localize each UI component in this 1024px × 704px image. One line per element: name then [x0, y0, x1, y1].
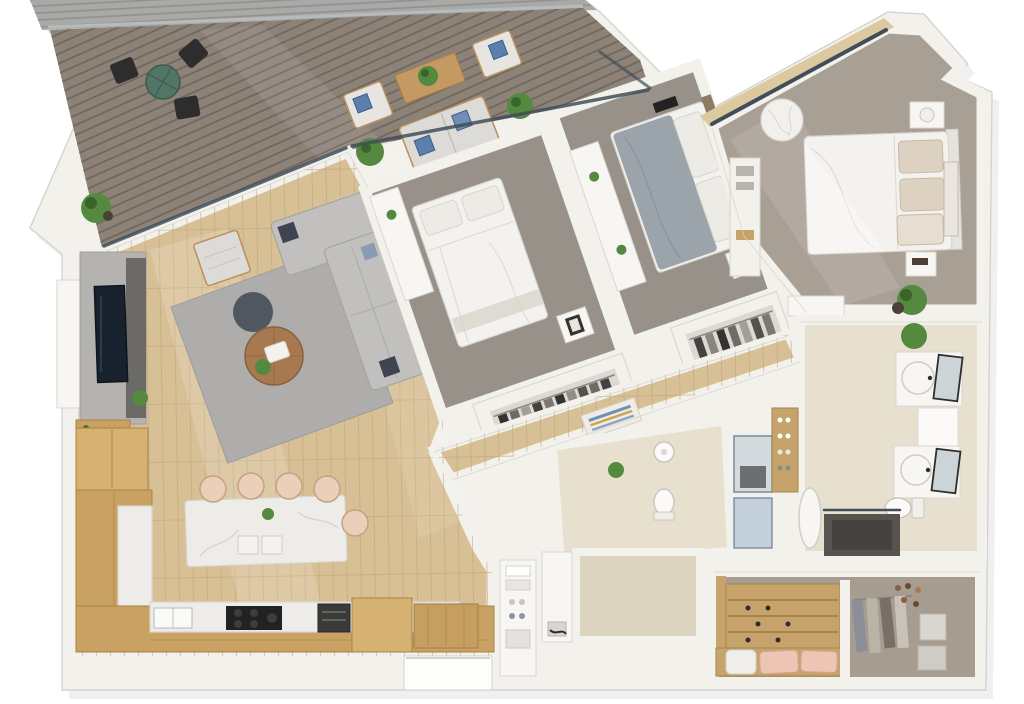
- plant-pot: [892, 302, 904, 314]
- master-nightstand-top: [910, 102, 944, 128]
- table-plant: [255, 359, 271, 375]
- tv-screen: [94, 286, 127, 383]
- storage-basket: [920, 614, 946, 640]
- pillow-beige: [900, 178, 945, 212]
- table-plant-core: [421, 69, 429, 77]
- books: [912, 258, 928, 265]
- bath-plant: [901, 323, 927, 349]
- media-plant: [132, 390, 148, 406]
- entry: [404, 656, 492, 690]
- bar-stool: [276, 473, 302, 499]
- kitchen-island: [185, 495, 347, 567]
- towel: [506, 580, 530, 590]
- guest-bathroom: [552, 420, 772, 564]
- media-cabinet-white: [57, 280, 81, 408]
- master-bed: [804, 129, 962, 254]
- plant-pot: [103, 211, 113, 221]
- bar-stool: [342, 510, 368, 536]
- leaning-mirror: [932, 449, 961, 494]
- faucet: [928, 376, 932, 380]
- laundry-tile-wall: [576, 552, 700, 640]
- countertop-left: [118, 506, 152, 610]
- washer-counter: [542, 552, 572, 642]
- bath-plant: [608, 462, 624, 478]
- master-bathroom: [772, 320, 982, 556]
- island-sink: [238, 536, 258, 554]
- leaning-artwork: [944, 162, 958, 236]
- master-closet-shelf: [730, 158, 760, 276]
- cooktop: [226, 606, 282, 630]
- ottoman-pouf: [233, 292, 273, 332]
- walk-in-closet: [714, 572, 980, 682]
- entry-recess: [404, 656, 492, 690]
- floor-plan-render: [0, 0, 1024, 704]
- pink-pillow: [801, 650, 838, 672]
- kitchen-step-cabinet: [352, 598, 412, 652]
- master-dresser: [788, 296, 844, 316]
- master-bedroom: [700, 18, 982, 316]
- storage-basket: [918, 646, 946, 670]
- vanity-2: [894, 446, 960, 498]
- linen-shelf: [500, 560, 536, 676]
- pink-pillow: [759, 650, 798, 674]
- bar-stool: [238, 473, 264, 499]
- closet-bench: [716, 648, 842, 676]
- built-in-oven: [318, 604, 350, 632]
- bar-stool: [314, 476, 340, 502]
- bean-bag-chair: [761, 99, 803, 141]
- walk-in-shower: [824, 510, 900, 556]
- shower-mat: [832, 520, 892, 550]
- island-sink: [262, 536, 282, 554]
- bar-stool: [200, 476, 226, 502]
- closet-divider-wall: [840, 580, 850, 678]
- round-coffee-table: [245, 327, 303, 385]
- glass-shower: [734, 436, 772, 492]
- deck-plant-core: [511, 97, 521, 107]
- basket: [506, 630, 530, 648]
- table-plant: [418, 66, 438, 86]
- vanity-column: [918, 408, 958, 446]
- outdoor-chair-icon: [173, 95, 200, 120]
- shower-floor: [740, 466, 766, 488]
- master-nightstand-bottom: [906, 252, 936, 276]
- white-throw: [726, 650, 756, 674]
- pillow-beige: [898, 140, 943, 174]
- glass-cabinet: [734, 498, 772, 548]
- tiered-shoe-shelves: [726, 584, 840, 650]
- faucet: [926, 468, 930, 472]
- vanity-1: [896, 352, 963, 406]
- towel: [506, 566, 530, 576]
- pillow-beige: [897, 214, 944, 246]
- leaning-mirror: [933, 355, 962, 402]
- guest-toilet: [654, 489, 674, 520]
- island-plant: [262, 508, 274, 520]
- guest-bath-floor: [552, 420, 732, 564]
- bathtub: [799, 488, 821, 548]
- table-lamp: [920, 108, 934, 122]
- floor-plan-canvas: [0, 0, 1024, 704]
- shoe-shelf: [772, 408, 798, 492]
